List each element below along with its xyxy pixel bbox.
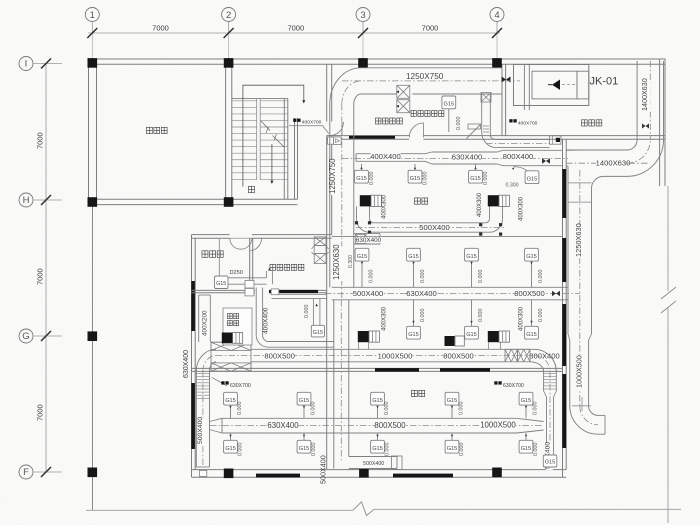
svg-text:0.000: 0.000 [456,117,462,131]
svg-text:630X700: 630X700 [503,383,524,389]
svg-text:0.000: 0.000 [459,402,465,416]
svg-text:7000: 7000 [152,24,169,33]
svg-text:G15: G15 [527,176,538,182]
svg-text:0.000: 0.000 [478,270,484,284]
svg-text:0.000: 0.000 [420,270,426,284]
svg-text:800X500: 800X500 [374,421,406,430]
svg-text:G15: G15 [521,398,532,404]
svg-text:G15: G15 [410,176,421,182]
svg-text:630X400: 630X400 [267,421,299,430]
svg-text:1250X630: 1250X630 [574,223,583,257]
svg-text:1000X500: 1000X500 [480,421,516,430]
svg-text:G15: G15 [447,398,458,404]
svg-text:G15: G15 [225,446,236,452]
svg-text:G15: G15 [447,446,458,452]
svg-text:630X400: 630X400 [452,153,482,162]
svg-text:400X300: 400X300 [519,306,525,331]
svg-text:500X400: 500X400 [419,223,449,232]
svg-text:630X400: 630X400 [356,237,382,244]
svg-text:800X500: 800X500 [514,289,544,298]
svg-text:800X400: 800X400 [503,152,533,161]
svg-text:G15: G15 [408,254,419,260]
svg-text:G15: G15 [526,254,537,260]
svg-text:800X500: 800X500 [264,351,294,360]
svg-text:G15: G15 [408,332,419,338]
svg-text:400X200: 400X200 [202,310,209,336]
svg-text:1000X500: 1000X500 [575,355,584,388]
svg-text:0.300: 0.300 [506,183,519,189]
svg-text:0.000: 0.000 [533,443,539,457]
svg-text:G15: G15 [216,281,226,287]
svg-text:400X400: 400X400 [370,152,400,161]
svg-text:500X400: 500X400 [197,417,204,444]
svg-text:0.000: 0.000 [459,443,465,457]
svg-text:7000: 7000 [36,268,45,285]
svg-text:1250X750: 1250X750 [406,72,444,81]
svg-text:2: 2 [226,10,231,21]
svg-text:G15: G15 [545,460,556,466]
svg-text:G15: G15 [526,332,537,338]
svg-text:0.000: 0.000 [311,402,317,416]
svg-text:400X700: 400X700 [302,120,322,126]
svg-text:800X400: 800X400 [529,352,559,361]
svg-text:800X500: 800X500 [443,351,473,360]
svg-text:500X400: 500X400 [319,455,328,484]
svg-text:G15: G15 [357,254,368,260]
svg-text:0.000: 0.000 [385,443,391,457]
svg-text:500X400: 500X400 [353,289,383,298]
svg-text:G15: G15 [470,176,481,182]
svg-text:G15: G15 [299,398,310,404]
svg-text:D250: D250 [230,270,243,276]
svg-text:4: 4 [494,10,499,21]
svg-text:400X700: 400X700 [518,120,538,126]
svg-text:0.000: 0.000 [478,309,484,323]
svg-text:400X300: 400X300 [382,306,388,331]
svg-text:G15: G15 [466,254,477,260]
svg-text:1250X630: 1250X630 [332,244,341,280]
svg-text:0.000: 0.000 [238,443,244,457]
svg-text:F: F [23,467,29,478]
svg-text:3: 3 [360,10,365,21]
svg-text:7000: 7000 [422,24,439,33]
svg-text:630X400: 630X400 [183,350,190,378]
svg-text:1400X630: 1400X630 [640,78,649,111]
svg-text:G15: G15 [299,446,310,452]
svg-text:G: G [22,331,29,342]
svg-text:7000: 7000 [36,404,45,421]
svg-text:400X300: 400X300 [477,192,483,217]
svg-text:0.000: 0.000 [369,270,375,284]
svg-text:0.000: 0.000 [538,270,544,284]
svg-text:1400X630: 1400X630 [596,159,631,168]
svg-text:400X300: 400X300 [519,196,525,221]
svg-text:0.000: 0.000 [304,305,310,319]
svg-text:0.000: 0.000 [420,309,426,323]
svg-text:0.000: 0.000 [369,172,375,186]
svg-text:G15: G15 [466,332,477,338]
svg-text:0.000: 0.000 [423,172,429,186]
svg-text:H: H [23,195,30,206]
svg-text:7000: 7000 [287,24,304,33]
svg-text:1: 1 [90,10,95,21]
svg-text:G15: G15 [313,330,323,336]
svg-text:0.000: 0.000 [538,309,544,323]
svg-text:G15: G15 [356,176,367,182]
svg-text:0.300: 0.300 [348,255,354,268]
svg-text:I: I [25,59,28,70]
svg-text:G15: G15 [444,102,455,108]
svg-text:0.000: 0.000 [483,172,489,186]
svg-text:630X400: 630X400 [406,289,436,298]
svg-text:630X700: 630X700 [230,383,251,389]
svg-text:0.000: 0.000 [237,402,243,416]
svg-text:G15: G15 [521,446,532,452]
svg-text:400X300: 400X300 [382,194,388,219]
svg-text:7000: 7000 [36,132,45,149]
svg-text:0.000: 0.000 [311,443,317,457]
svg-text:400X400: 400X400 [263,307,270,334]
svg-text:G15: G15 [225,398,236,404]
svg-text:1250X750: 1250X750 [328,158,337,194]
svg-text:0.000: 0.000 [533,402,539,416]
svg-text:JK-01: JK-01 [590,76,619,88]
svg-text:0.000: 0.000 [384,402,390,416]
svg-text:G15: G15 [372,398,383,404]
svg-text:G15: G15 [372,446,383,452]
svg-text:500X400: 500X400 [363,461,384,467]
svg-text:1000X500: 1000X500 [378,351,413,360]
